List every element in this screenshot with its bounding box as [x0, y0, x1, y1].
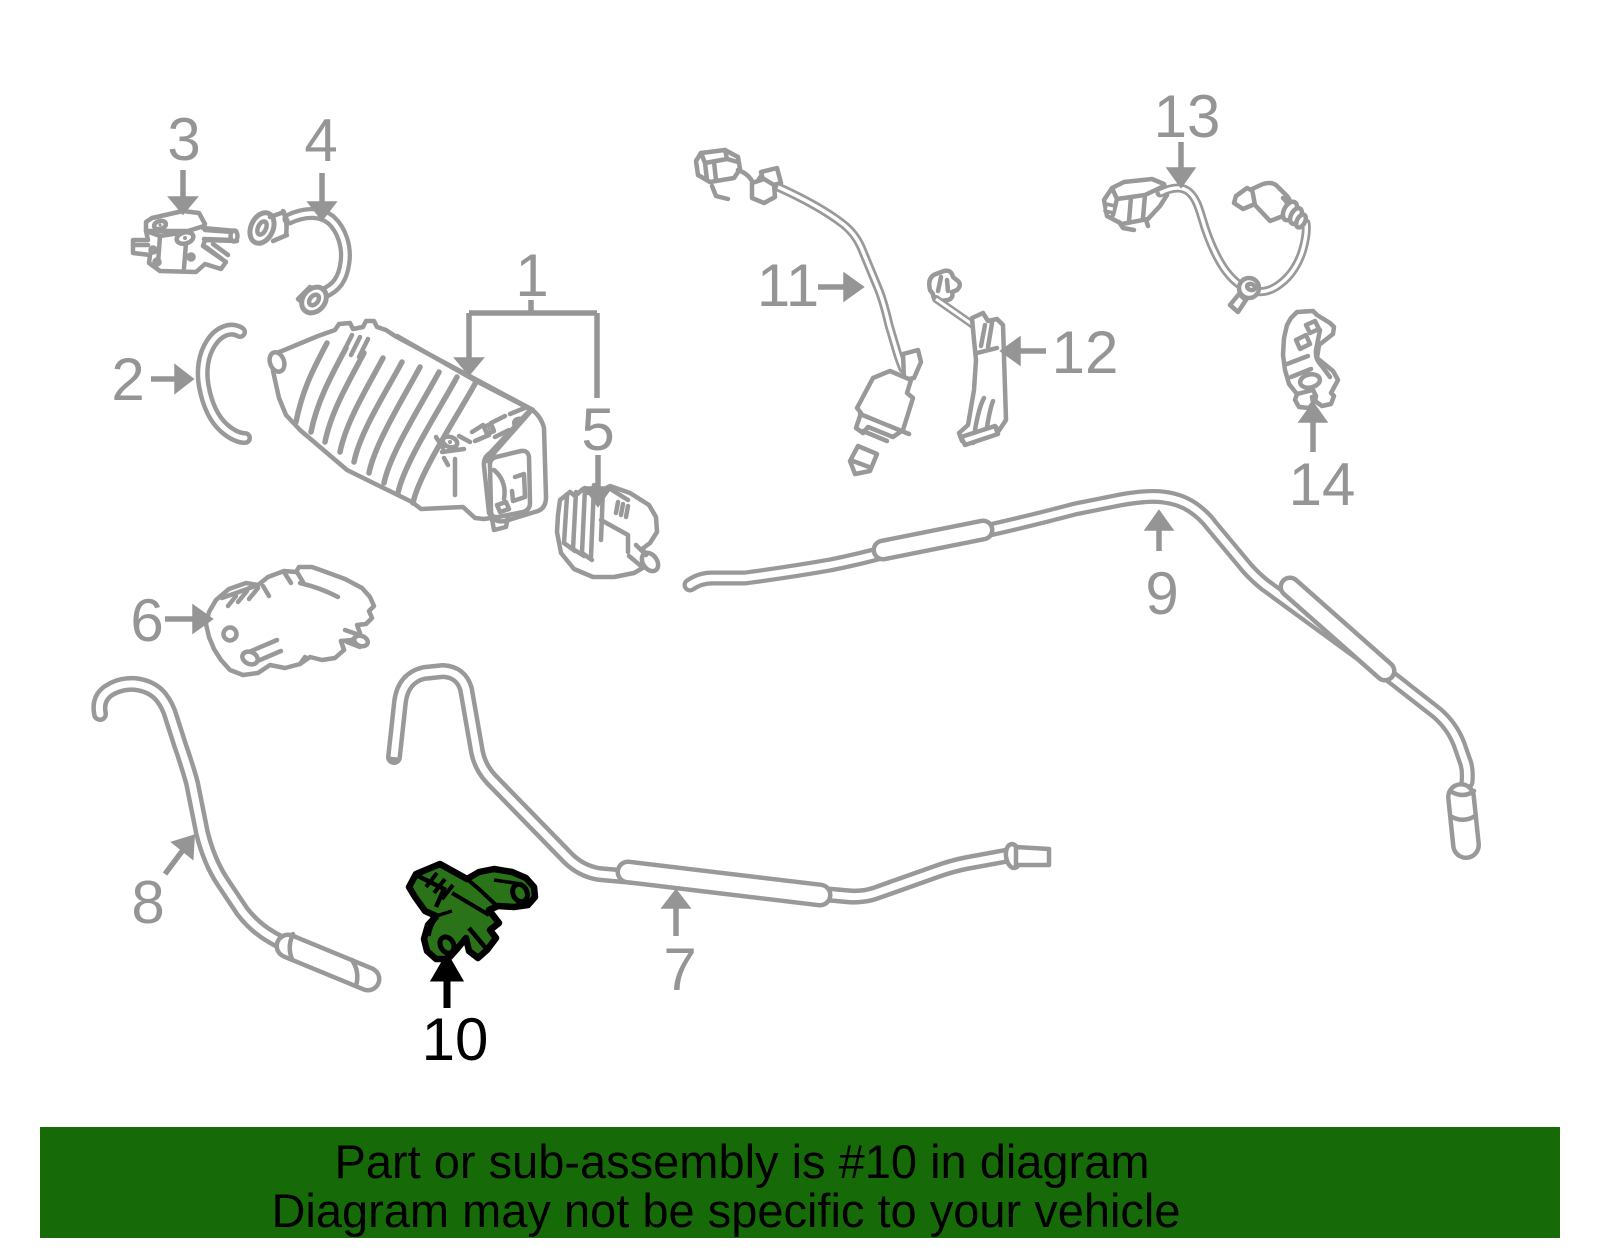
svg-text:14: 14 — [1289, 451, 1356, 518]
svg-text:Part or sub-assembly is #10 in: Part or sub-assembly is #10 in diagram — [334, 1135, 1149, 1188]
svg-text:11: 11 — [757, 252, 819, 319]
svg-text:2: 2 — [111, 346, 144, 413]
svg-text:7: 7 — [663, 936, 696, 1003]
svg-text:3: 3 — [167, 106, 200, 173]
svg-text:6: 6 — [130, 587, 163, 654]
svg-text:13: 13 — [1154, 83, 1221, 150]
svg-text:4: 4 — [304, 107, 337, 174]
svg-text:9: 9 — [1145, 560, 1178, 627]
svg-text:5: 5 — [581, 396, 614, 463]
svg-text:10: 10 — [422, 1006, 489, 1073]
svg-text:12: 12 — [1052, 319, 1119, 386]
svg-text:1: 1 — [515, 242, 548, 309]
svg-text:Diagram may not be specific to: Diagram may not be specific to your vehi… — [271, 1184, 1180, 1237]
svg-text:8: 8 — [131, 869, 164, 936]
